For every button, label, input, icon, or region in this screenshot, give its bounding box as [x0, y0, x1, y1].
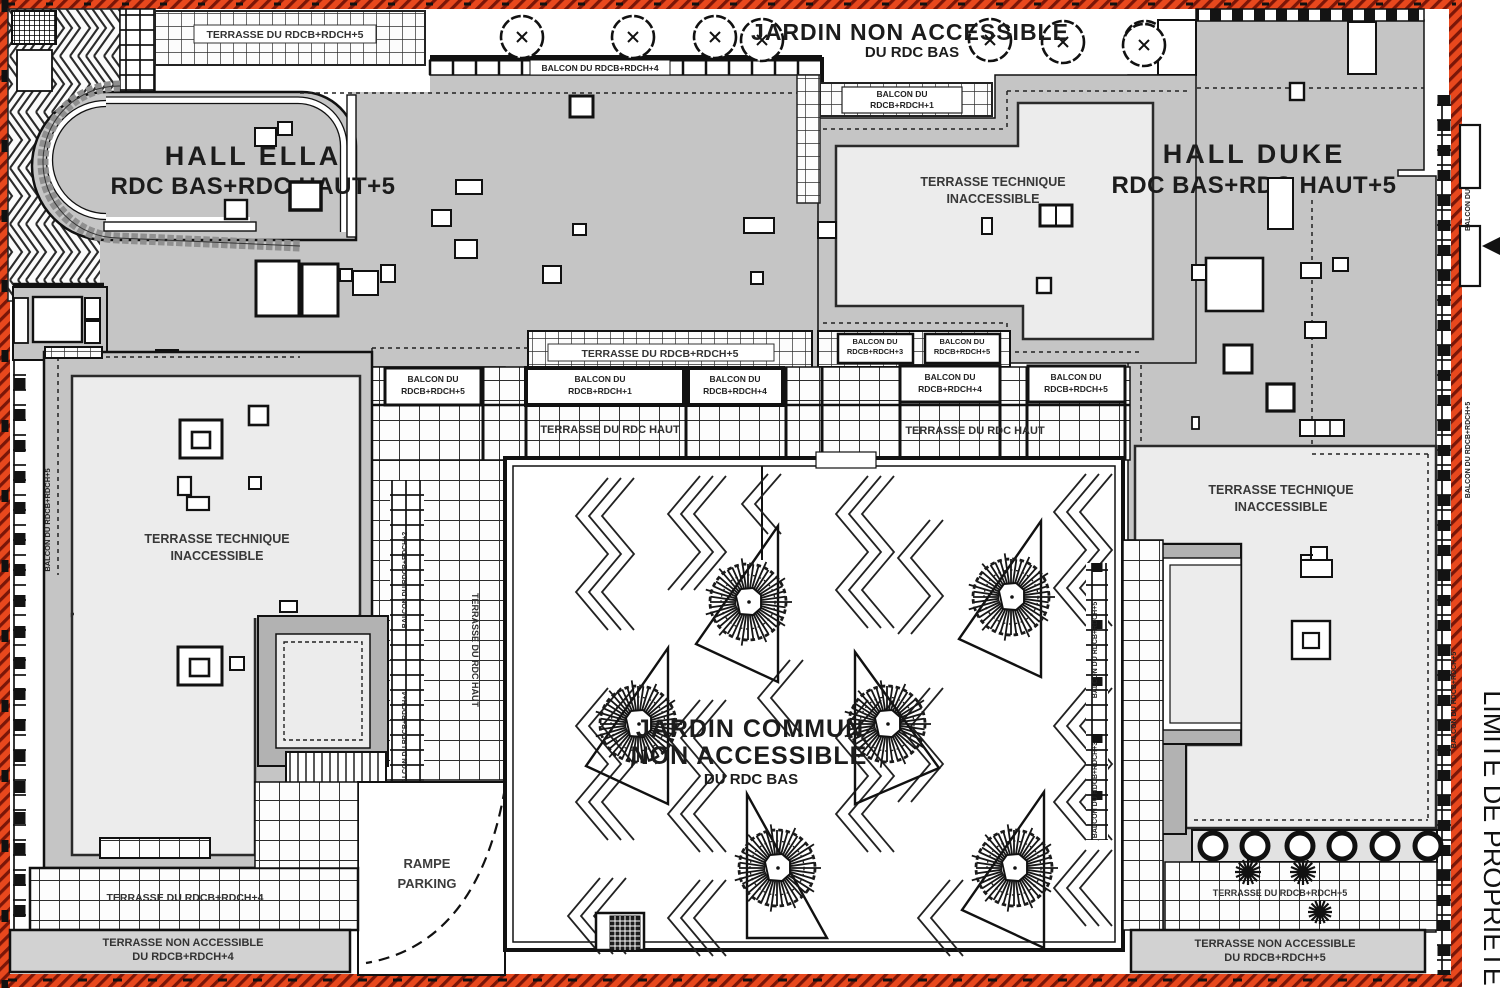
svg-text:TERRASSE DU RDCB+RDCH+5: TERRASSE DU RDCB+RDCH+5 [1213, 888, 1348, 898]
svg-text:BALCON DU: BALCON DU [940, 337, 985, 346]
svg-text:BALCON DU RDCB+RDCH+3: BALCON DU RDCB+RDCH+3 [1092, 742, 1099, 839]
svg-text:BALCON DU RDCB+RDCH+5: BALCON DU RDCB+RDCH+5 [1451, 652, 1458, 749]
svg-text:TERRASSE NON ACCESSIBLE: TERRASSE NON ACCESSIBLE [103, 937, 264, 949]
svg-text:INACCESSIBLE: INACCESSIBLE [1234, 500, 1327, 514]
svg-text:JARDIN NON ACCESSIBLE: JARDIN NON ACCESSIBLE [751, 19, 1069, 45]
svg-text:TERRASSE NON ACCESSIBLE: TERRASSE NON ACCESSIBLE [1195, 938, 1356, 950]
svg-text:RDC BAS+RDC HAUT+5: RDC BAS+RDC HAUT+5 [110, 173, 395, 200]
svg-text:TERRASSE TECHNIQUE: TERRASSE TECHNIQUE [920, 175, 1065, 189]
svg-text:BALCON DU: BALCON DU [408, 374, 459, 384]
svg-text:DU RDCB+RDCH+4: DU RDCB+RDCH+4 [132, 951, 234, 963]
svg-text:INACCESSIBLE: INACCESSIBLE [170, 549, 263, 563]
svg-text:DU RDC BAS: DU RDC BAS [865, 44, 959, 61]
svg-text:RDCB+RDCH+5: RDCB+RDCH+5 [401, 386, 465, 396]
svg-text:LIMITE DE PROPRIETE: LIMITE DE PROPRIETE [1478, 690, 1500, 986]
svg-text:PARKING: PARKING [398, 876, 457, 891]
svg-text:DU RDCB+RDCH+5: DU RDCB+RDCH+5 [1224, 952, 1325, 964]
svg-text:BALCON DU RDCB+RDCH+5: BALCON DU RDCB+RDCH+5 [1092, 602, 1099, 699]
svg-text:TERRASSE TECHNIQUE: TERRASSE TECHNIQUE [1208, 483, 1353, 497]
svg-text:HALL DUKE: HALL DUKE [1163, 139, 1346, 169]
svg-text:TERRASSE DU RDC HAUT: TERRASSE DU RDC HAUT [470, 593, 480, 708]
svg-text:BALCON DU RDCB+RDCH+5: BALCON DU RDCB+RDCH+5 [43, 468, 52, 571]
svg-text:TERRASSE DU RDC HAUT: TERRASSE DU RDC HAUT [905, 425, 1045, 437]
svg-text:RDCB+RDCH+4: RDCB+RDCH+4 [703, 386, 767, 396]
svg-text:TERRASSE TECHNIQUE: TERRASSE TECHNIQUE [144, 532, 289, 546]
svg-text:RDCB+RDCH+4: RDCB+RDCH+4 [918, 384, 982, 394]
svg-text:BALCON DU RDCB+RDCH+2: BALCON DU RDCB+RDCH+2 [402, 532, 409, 629]
svg-text:HALL ELLA: HALL ELLA [165, 141, 342, 171]
svg-text:TERRASSE DU RDCB+RDCH+5: TERRASSE DU RDCB+RDCH+5 [207, 29, 364, 41]
svg-text:RDCB+RDCH+5: RDCB+RDCH+5 [1044, 384, 1108, 394]
svg-text:BALCON DU: BALCON DU [1051, 372, 1102, 382]
svg-text:RDCB+RDCH+5: RDCB+RDCH+5 [934, 347, 990, 356]
svg-text:TERRASSE DU RDCB+RDCH+4: TERRASSE DU RDCB+RDCH+4 [107, 892, 264, 904]
svg-text:DU RDC BAS: DU RDC BAS [704, 771, 798, 788]
svg-text:RDCB+RDCH+1: RDCB+RDCH+1 [568, 386, 632, 396]
svg-text:BALCON DU: BALCON DU [877, 89, 928, 99]
svg-text:RDCB+RDCH+3: RDCB+RDCH+3 [847, 347, 903, 356]
svg-text:BALCON DU: BALCON DU [853, 337, 898, 346]
svg-text:BALCON DU: BALCON DU [925, 372, 976, 382]
svg-text:INACCESSIBLE: INACCESSIBLE [946, 192, 1039, 206]
svg-text:BALCON DU: BALCON DU [1465, 189, 1472, 231]
svg-text:RDCB+RDCH+1: RDCB+RDCH+1 [870, 100, 934, 110]
svg-text:BALCON DU: BALCON DU [575, 374, 626, 384]
svg-text:TERRASSE DU RDC HAUT: TERRASSE DU RDC HAUT [540, 424, 680, 436]
svg-text:BALCON DU RDCB+RDCH+4: BALCON DU RDCB+RDCH+4 [402, 692, 409, 789]
svg-text:TERRASSE DU RDCB+RDCH+5: TERRASSE DU RDCB+RDCH+5 [582, 348, 739, 360]
svg-text:JARDIN COMMUN: JARDIN COMMUN [636, 715, 864, 743]
svg-text:BALCON DU RDCB+RDCH+4: BALCON DU RDCB+RDCH+4 [541, 63, 658, 73]
svg-text:RAMPE: RAMPE [404, 856, 451, 871]
svg-text:NON ACCESSIBLE: NON ACCESSIBLE [631, 742, 868, 770]
svg-text:RDC BAS+RDC HAUT+5: RDC BAS+RDC HAUT+5 [1111, 172, 1396, 199]
svg-text:BALCON DU RDCB+RDCH+5: BALCON DU RDCB+RDCH+5 [1465, 402, 1472, 499]
svg-text:BALCON DU: BALCON DU [710, 374, 761, 384]
